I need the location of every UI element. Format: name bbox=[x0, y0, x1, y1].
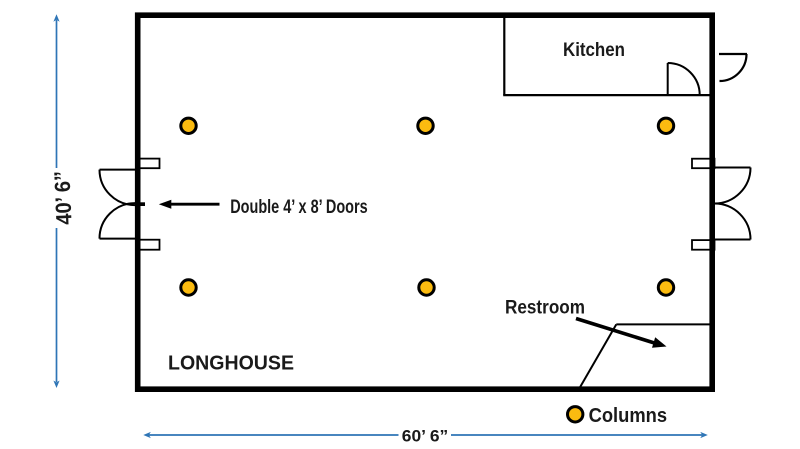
svg-text:Restroom: Restroom bbox=[505, 297, 585, 319]
svg-text:40’ 6”: 40’ 6” bbox=[49, 170, 76, 225]
svg-text:Double 4’ x 8’ Doors: Double 4’ x 8’ Doors bbox=[230, 196, 368, 218]
svg-text:Columns: Columns bbox=[589, 404, 668, 427]
svg-text:60’ 6”: 60’ 6” bbox=[402, 426, 449, 445]
svg-text:Kitchen: Kitchen bbox=[563, 40, 625, 61]
svg-text:LONGHOUSE: LONGHOUSE bbox=[168, 353, 294, 375]
